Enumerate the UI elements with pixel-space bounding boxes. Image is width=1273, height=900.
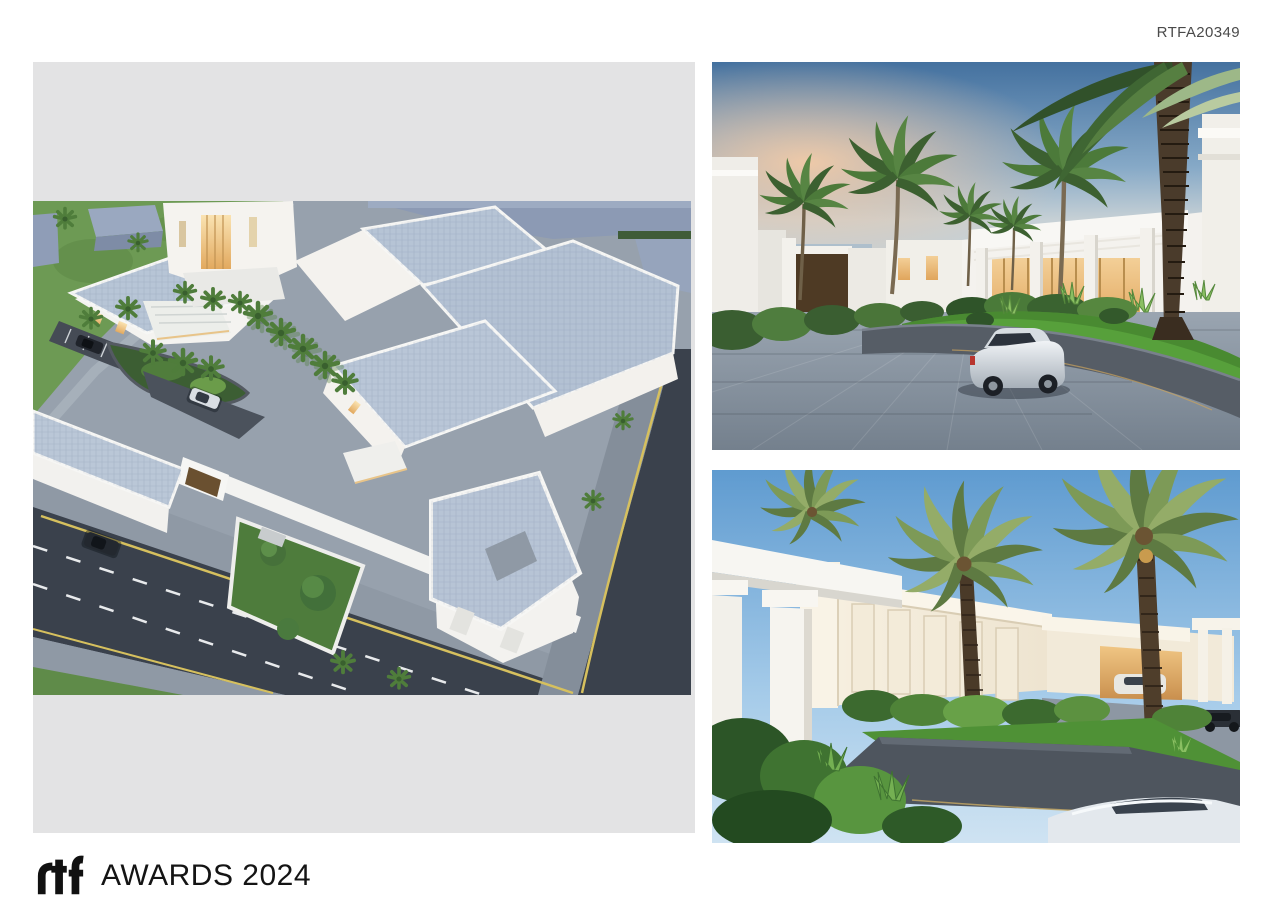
footer: AWARDS 2024	[35, 853, 311, 899]
driveway-art	[712, 62, 1240, 450]
rtf-logo	[35, 854, 87, 898]
awards-wordmark: AWARDS 2024	[101, 859, 311, 893]
presentation-board: RTFA20349	[0, 0, 1273, 900]
submission-code: RTFA20349	[1157, 24, 1240, 41]
entrance-colonnade-image	[712, 470, 1240, 843]
taillight	[970, 356, 975, 365]
aerial-masterplan-image	[33, 201, 691, 695]
driveway-image	[712, 62, 1240, 450]
aerial-masterplan-art	[33, 201, 691, 695]
entrance-art	[712, 470, 1240, 843]
